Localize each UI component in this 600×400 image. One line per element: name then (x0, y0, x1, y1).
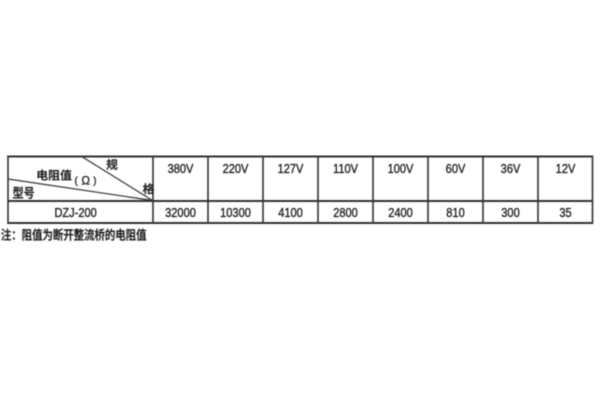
svg-text:100V: 100V (388, 161, 414, 176)
svg-text:35: 35 (559, 205, 572, 220)
svg-text:): ) (93, 176, 96, 187)
svg-text:DZJ-200: DZJ-200 (54, 205, 97, 220)
svg-text:810: 810 (446, 205, 465, 220)
svg-text:2400: 2400 (388, 205, 413, 220)
svg-text:127V: 127V (278, 161, 304, 176)
svg-text:Ω: Ω (81, 174, 90, 187)
svg-text:380V: 380V (168, 161, 194, 176)
svg-text:32000: 32000 (165, 205, 196, 220)
svg-text:10300: 10300 (220, 205, 251, 220)
svg-text:12V: 12V (556, 161, 576, 176)
svg-text:220V: 220V (223, 161, 249, 176)
svg-text:110V: 110V (333, 161, 358, 176)
svg-text:(: ( (75, 176, 79, 187)
svg-text:300: 300 (501, 205, 520, 220)
svg-text:36V: 36V (501, 161, 521, 176)
svg-text:4100: 4100 (278, 205, 303, 220)
svg-text:60V: 60V (446, 161, 466, 176)
svg-text:2800: 2800 (333, 205, 358, 220)
